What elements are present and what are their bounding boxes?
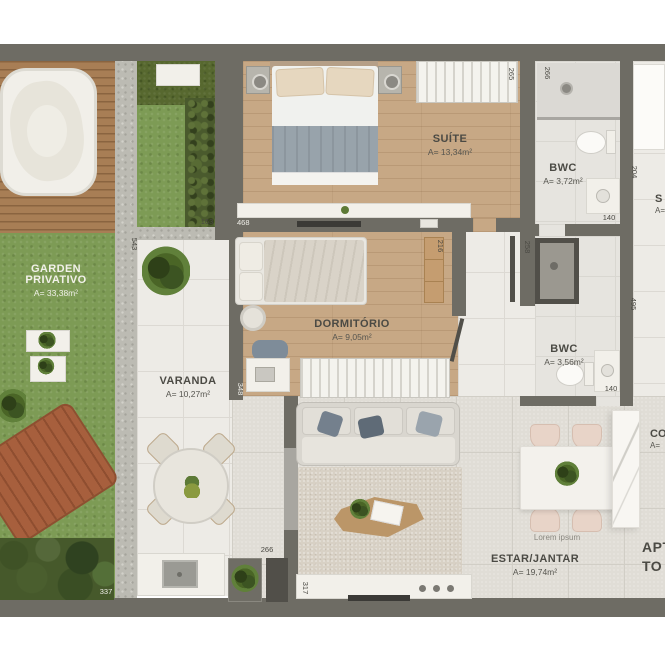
- desk-laptop: [255, 367, 275, 382]
- cabinet-shelf: [425, 259, 443, 260]
- bwc-bottom-label-group: BWC A= 3,56m²: [524, 344, 604, 367]
- dimension-label: 163: [194, 218, 220, 226]
- lamp: [252, 74, 268, 90]
- room-area: A= 3,56m²: [524, 358, 604, 367]
- sofa-seat: [302, 437, 455, 463]
- room-area: A= 10,27m²: [128, 390, 248, 399]
- kitchen-island: [612, 410, 640, 528]
- room-area-fragment: A=: [650, 441, 665, 451]
- console-knob: [433, 585, 440, 592]
- apto-partial-label: APT TO: [642, 538, 665, 576]
- table-centerpiece: [183, 476, 201, 498]
- desk: [246, 358, 290, 392]
- dormitorio-right-wall: [452, 226, 466, 316]
- floor-plan: GARDEN PRIVATIVO A= 33,38m² SUÍTE A= 13,…: [0, 0, 665, 665]
- room-area: A= 33,38m²: [0, 289, 112, 298]
- varanda-counter: [137, 553, 225, 596]
- pillow: [275, 67, 324, 97]
- pillow: [325, 67, 374, 97]
- throw-pillow: [357, 415, 385, 440]
- suite-label-group: SUÍTE A= 13,34m²: [390, 134, 510, 157]
- pouf: [240, 305, 266, 331]
- room-label: ESTAR/JANTAR: [455, 554, 615, 565]
- dimension-label: 348: [236, 377, 244, 401]
- apto-label-line1: APT: [642, 538, 665, 557]
- estar-label-group: ESTAR/JANTAR A= 19,74m²: [455, 554, 615, 577]
- suite-double-bed: [272, 66, 378, 184]
- bwc-top-door-opening: [539, 224, 565, 236]
- varanda-palm: [142, 243, 190, 305]
- cozinha-partial-label: CO A=: [650, 427, 665, 452]
- dimension-label: 468: [237, 219, 267, 227]
- suite-tv: [297, 221, 361, 227]
- single-bed: [235, 237, 367, 305]
- nightstand-right: [378, 66, 402, 94]
- dormitorio-label-group: DORMITÓRIO A= 9,05m²: [292, 319, 412, 342]
- suite-bed-foot: [272, 172, 378, 185]
- room-area: A= 19,74m²: [455, 568, 615, 577]
- room-label: GARDEN PRIVATIVO: [0, 264, 112, 286]
- console-plant: [341, 206, 349, 214]
- console-knob: [447, 585, 454, 592]
- shower-bottom-frame: [535, 238, 579, 304]
- service-niche: [266, 558, 288, 602]
- hot-tub-seat: [27, 105, 67, 157]
- shower-bottom: [540, 243, 574, 299]
- console-tray: [420, 219, 438, 228]
- planter-box: [228, 558, 262, 602]
- dimension-label: 317: [301, 576, 309, 600]
- room-label: BWC: [523, 163, 603, 174]
- room-label: DORMITÓRIO: [292, 319, 412, 330]
- dimension-label: 266: [254, 546, 280, 554]
- garden-concrete-wall: [115, 61, 137, 600]
- room-label: BWC: [524, 344, 604, 355]
- pillow: [239, 242, 263, 271]
- entry-door-swing: [633, 64, 665, 150]
- suite-bed-blanket: [272, 126, 378, 172]
- hedge: [185, 98, 215, 233]
- desk-chair: [252, 340, 288, 360]
- bwc-bottom-door-opening: [596, 396, 620, 406]
- suite-wardrobe: [416, 61, 518, 103]
- planter-plant: [36, 332, 58, 350]
- shower-drain: [550, 262, 558, 270]
- dimension-label: 258: [523, 235, 531, 259]
- lorem-annotation: Lorem ipsum: [507, 533, 607, 542]
- varanda-sink: [162, 560, 198, 588]
- living-tv: [348, 595, 410, 601]
- room-area-fragment: A=: [655, 206, 665, 216]
- bwc-top-label-group: BWC A= 3,72m²: [523, 163, 603, 186]
- dimension-label: 337: [93, 588, 119, 596]
- nightstand-left: [246, 66, 270, 94]
- room-label-fragment: CO: [650, 427, 665, 441]
- bottom-wall: [0, 598, 665, 617]
- toilet-bowl-top-bwc: [576, 131, 606, 154]
- sink-drain: [177, 572, 182, 577]
- servico-partial-label: S A=: [655, 192, 665, 217]
- planter-box-plants: [231, 563, 259, 597]
- sink: [596, 189, 610, 203]
- suite-bwc-wall: [520, 61, 535, 228]
- console-knob: [419, 585, 426, 592]
- dimension-label: 543: [130, 232, 138, 256]
- room-area: A= 9,05m²: [292, 333, 412, 342]
- cabinet-shelf: [425, 281, 443, 282]
- dimension-label: 495: [629, 292, 637, 316]
- room-label: VARANDA: [128, 376, 248, 387]
- dimension-label: 216: [436, 234, 444, 258]
- pillow: [239, 272, 263, 301]
- shower-drain: [560, 82, 573, 95]
- garden-palm: [0, 385, 26, 431]
- hot-tub: [0, 68, 97, 196]
- round-dining-table: [153, 448, 229, 524]
- door-leaf: [510, 236, 515, 302]
- dormitorio-wardrobe: [300, 358, 450, 398]
- dining-table-plant: [553, 461, 581, 489]
- dimension-label: 204: [630, 160, 638, 184]
- suite-media-console: [237, 203, 471, 218]
- dimension-label: 265: [507, 62, 515, 86]
- top-wall: [0, 44, 665, 61]
- room-label: SUÍTE: [390, 134, 510, 145]
- room-label-fragment: S: [655, 192, 665, 206]
- single-bed-blanket: [264, 240, 364, 302]
- shower-glass: [537, 117, 620, 120]
- apto-label-line2: TO: [642, 557, 665, 576]
- coffee-table-plant: [348, 499, 372, 521]
- toilet-tank-top-bwc: [606, 130, 616, 154]
- room-area: A= 13,34m²: [390, 148, 510, 157]
- suite-door-opening: [473, 218, 496, 232]
- garden-label-group: GARDEN PRIVATIVO A= 33,38m²: [0, 264, 112, 298]
- dimension-label: 266: [543, 61, 551, 85]
- lamp: [384, 74, 400, 90]
- varanda-label-group: VARANDA A= 10,27m²: [128, 376, 248, 399]
- dimension-label: 140: [596, 214, 622, 222]
- garden-equipment-box: [156, 64, 200, 86]
- bwc-divider-wall: [520, 224, 632, 236]
- planter-plant-2: [36, 358, 56, 376]
- sofa: [296, 402, 460, 466]
- room-area: A= 3,72m²: [523, 177, 603, 186]
- dimension-label: 140: [598, 385, 624, 393]
- bwc-right-wall: [620, 61, 633, 404]
